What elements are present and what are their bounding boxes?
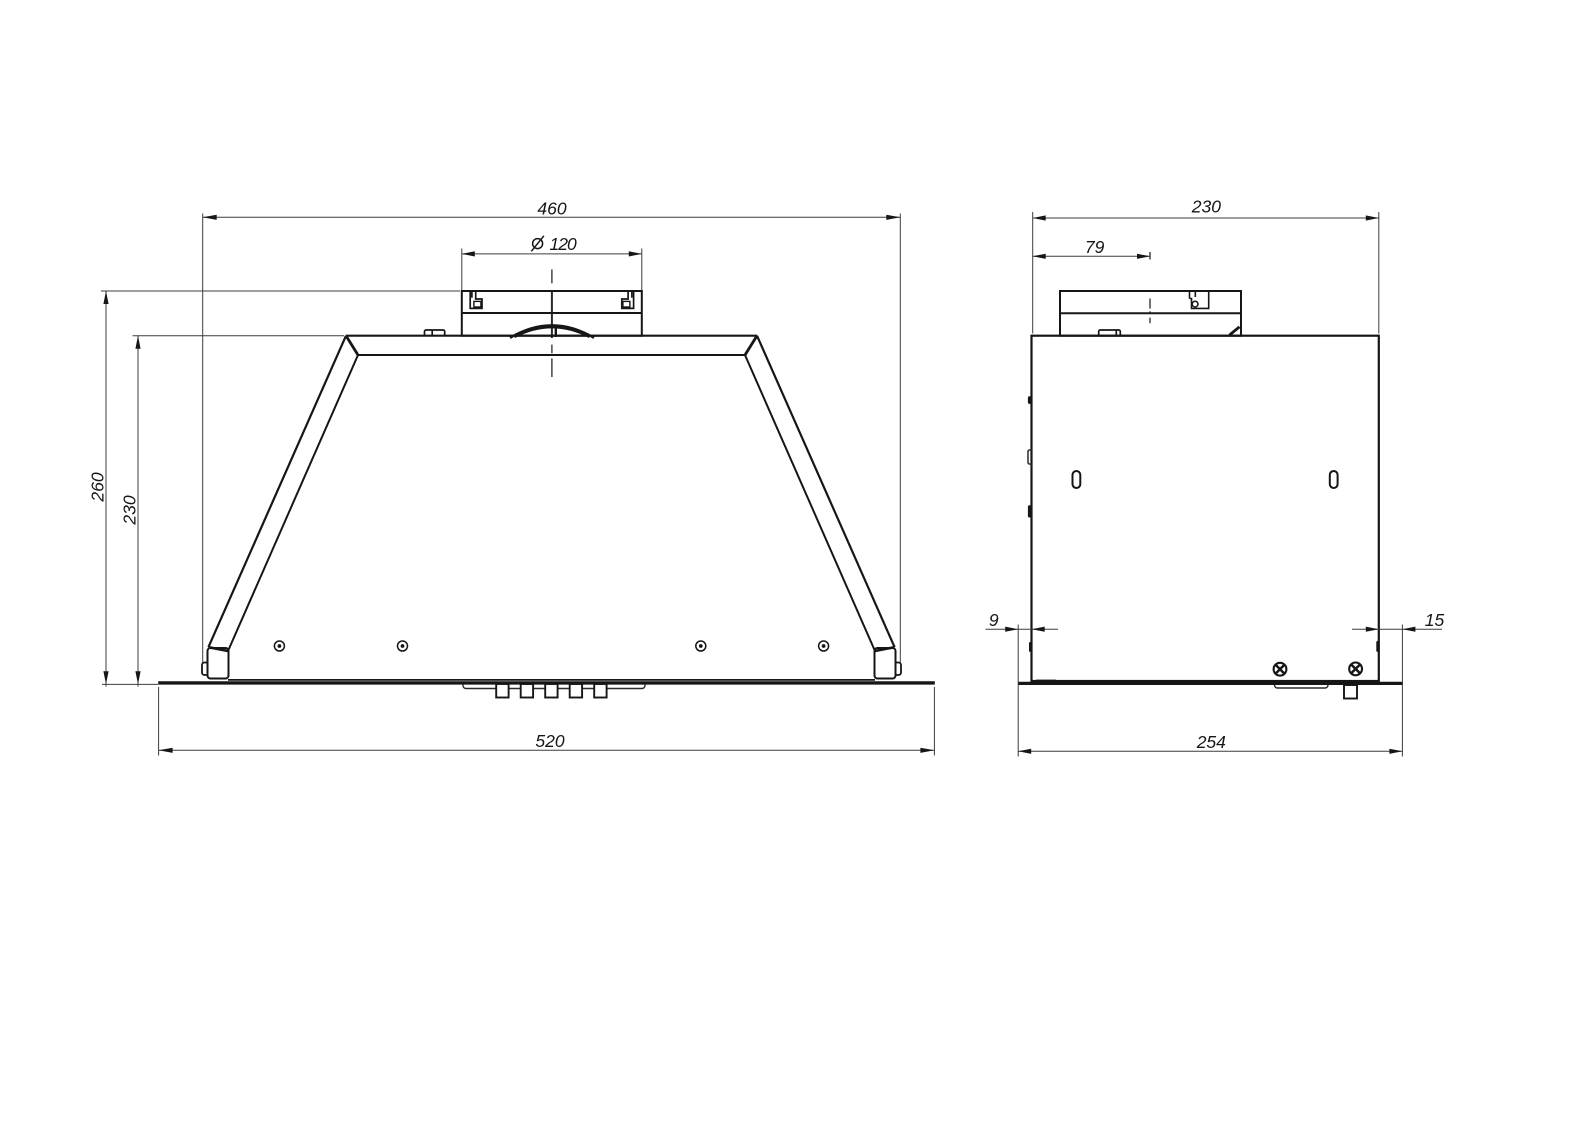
- svg-text:15: 15: [1425, 610, 1445, 630]
- svg-text:460: 460: [537, 199, 566, 219]
- svg-text:520: 520: [535, 731, 564, 751]
- svg-text:9: 9: [989, 610, 999, 630]
- svg-text:254: 254: [1196, 732, 1226, 752]
- svg-text:79: 79: [1085, 237, 1105, 257]
- svg-text:230: 230: [119, 495, 139, 525]
- svg-text:230: 230: [1191, 196, 1221, 216]
- svg-text:120: 120: [550, 234, 577, 254]
- svg-text:260: 260: [88, 472, 108, 502]
